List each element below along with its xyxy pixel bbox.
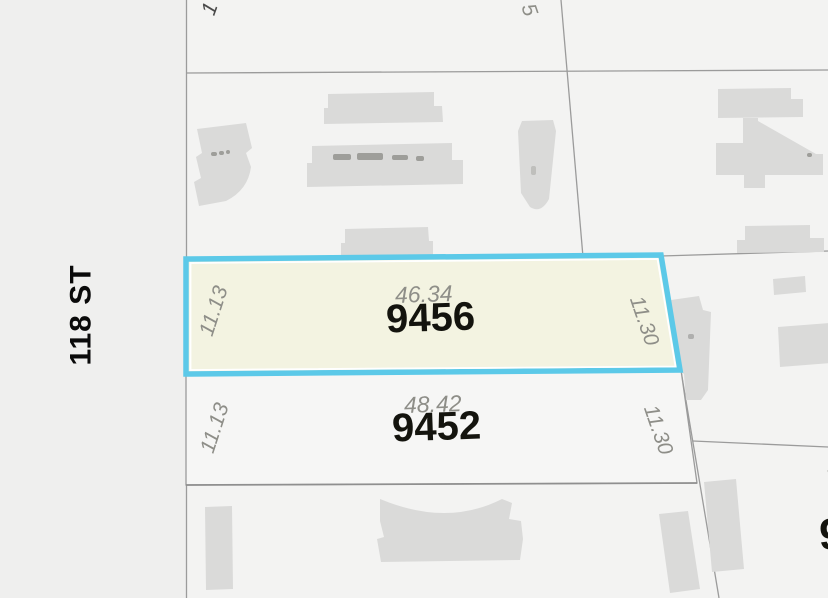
building-footprint — [341, 227, 433, 257]
clipped-parcel-number-right-edge: 9 — [819, 510, 828, 559]
building-footprint — [718, 88, 803, 118]
parcel-map-viewport[interactable]: 46.34 11.13 11.30 48.42 11.13 11.30 5 1 … — [0, 0, 828, 598]
south-parcel-number: 9452 — [391, 403, 481, 450]
parcel-map-canvas[interactable]: 46.34 11.13 11.30 48.42 11.13 11.30 5 1 … — [0, 0, 828, 598]
building-footprint — [773, 276, 806, 295]
building-footprint — [778, 323, 828, 367]
street-name-label: 118 ST — [65, 264, 98, 365]
building-footprint — [324, 92, 443, 124]
building-footprint — [205, 506, 233, 590]
building-footprint — [307, 143, 463, 187]
selected-parcel-number: 9456 — [385, 294, 475, 341]
